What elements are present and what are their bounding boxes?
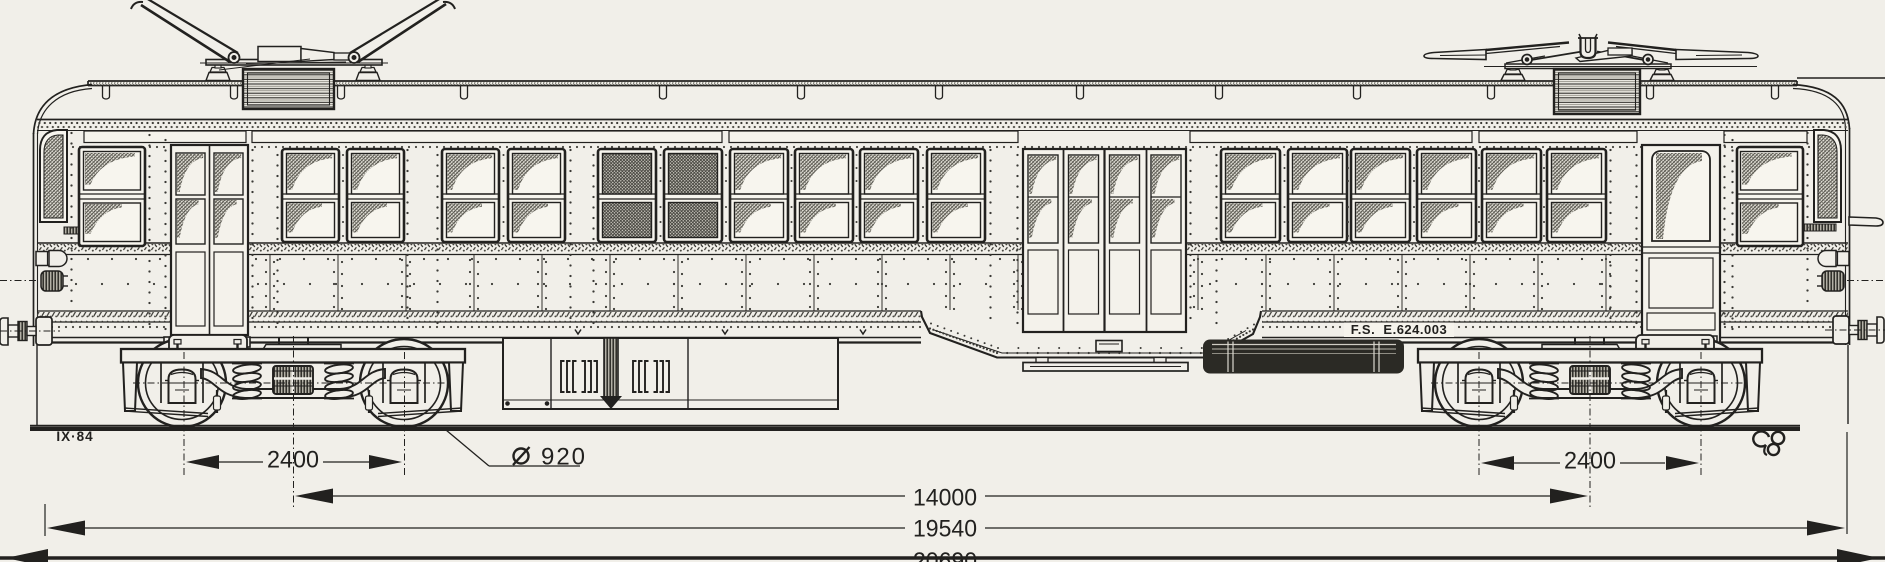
svg-text:2400: 2400 [267, 447, 319, 474]
svg-text:920: 920 [541, 444, 587, 471]
svg-text:IX·84: IX·84 [56, 429, 93, 444]
svg-text:2400: 2400 [1564, 448, 1616, 475]
svg-text:F.S. E.624.003: F.S. E.624.003 [1351, 322, 1447, 337]
svg-text:20690: 20690 [913, 548, 977, 562]
svg-text:14000: 14000 [913, 485, 977, 512]
svg-text:19540: 19540 [913, 516, 977, 543]
